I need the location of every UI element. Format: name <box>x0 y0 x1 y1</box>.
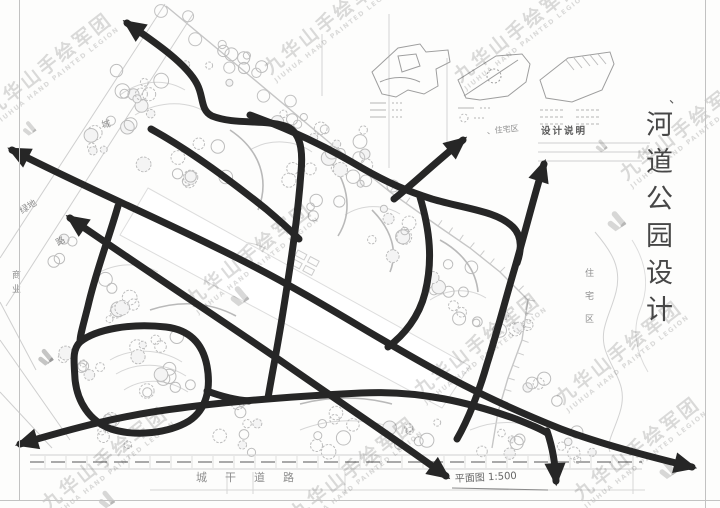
watermark: 九华山手绘军团JIUHUA HAND PAINTED LEGION <box>39 404 177 508</box>
label-city-main-road: 城干道路 <box>196 470 312 484</box>
path-left-descent <box>80 206 118 342</box>
watermark: 九华山手绘军团JIUHUA HAND PAINTED LEGION <box>617 74 720 190</box>
watermark: 九华山手绘军团JIUHUA HAND PAINTED LEGION <box>287 414 425 508</box>
path-right-connector <box>388 197 430 347</box>
watermark-en: JIUHUA HAND PAINTED LEGION <box>51 420 177 508</box>
sheet-title-vertical: 、 河道公园设计 <box>646 88 686 329</box>
watermark: 九华山手绘军团JIUHUA HAND PAINTED LEGION <box>0 10 121 126</box>
sketch-leader-lines <box>322 14 447 168</box>
flow-arrow-center <box>394 140 463 199</box>
watermark-en: JIUHUA HAND PAINTED LEGION <box>565 314 691 414</box>
label-residential-east: 住宅区 <box>585 267 594 325</box>
watermark-cn: 九华山手绘军团 <box>39 404 173 508</box>
design-note-heading: 设计说明 <box>541 125 587 137</box>
label-west-road: 路 <box>54 234 68 249</box>
watermark-cn: 九华山手绘军团 <box>553 298 687 409</box>
flow-arrow-northwest <box>127 23 302 398</box>
watermark-en: JIUHUA HAND PAINTED LEGION <box>629 90 720 190</box>
watermark-cn: 九华山手绘军团 <box>287 414 421 508</box>
sheet-frame <box>0 0 720 508</box>
path-loop-connector <box>207 391 249 401</box>
bold-arrow-network <box>12 23 692 481</box>
site-label-layer: 城 绿地 路 商业 、住宅区 住宅区 城干道路 <box>12 119 594 484</box>
watermark-cn: 九华山手绘军团 <box>571 394 705 505</box>
detail-sketch-1 <box>370 44 450 117</box>
minor-paths <box>150 130 478 404</box>
palm-watermark-icon <box>564 183 627 248</box>
watermark-en: JIUHUA HAND PAINTED LEGION <box>583 410 709 508</box>
detail-sketch-2 <box>458 54 530 122</box>
watermark: 九华山手绘军团JIUHUA HAND PAINTED LEGION <box>451 0 589 92</box>
flow-arrow-long-axis-1 <box>12 150 692 467</box>
tree-layer <box>48 5 596 464</box>
contour-lines <box>95 82 540 430</box>
watermark-en: JIUHUA HAND PAINTED LEGION <box>0 26 121 126</box>
watermark: 九华山手绘军团JIUHUA HAND PAINTED LEGION <box>571 394 709 508</box>
design-note-lines <box>538 143 650 161</box>
watermark-en: JIUHUA HAND PAINTED LEGION <box>423 306 549 406</box>
watermark: 九华山手绘军团JIUHUA HAND PAINTED LEGION <box>183 200 321 316</box>
palm-watermark-icon <box>61 466 115 508</box>
palm-watermark-icon <box>2 325 54 379</box>
scanned-plan-page: 九华山手绘军团JIUHUA HAND PAINTED LEGION 九华山手绘军… <box>0 0 720 508</box>
flow-arrow-southwest <box>20 393 547 444</box>
watermark-cn: 九华山手绘军团 <box>451 0 585 87</box>
title-orientation-mark: 、 <box>669 88 682 107</box>
detail-sketch-3 <box>540 52 614 124</box>
scale-note-group: 平面图 1:500 <box>452 470 548 490</box>
pencil-underlay <box>0 0 720 508</box>
palm-watermark-icon <box>0 101 37 148</box>
watermark-en: JIUHUA HAND PAINTED LEGION <box>273 0 399 84</box>
watermark-cn: 九华山手绘军团 <box>261 0 395 79</box>
west-road-lines <box>0 4 193 448</box>
watermark-cn: 九华山手绘军团 <box>0 10 117 121</box>
river-band <box>120 188 470 408</box>
stream-line <box>595 232 622 452</box>
path-mid-diagonal <box>151 129 299 239</box>
flow-arrow-northeast <box>457 164 544 439</box>
sheet-title: 河道公园设计 <box>646 107 686 329</box>
flow-arrow-long-axis-2 <box>70 218 446 476</box>
stream-line-2 <box>632 240 648 372</box>
watermark-en: JIUHUA HAND PAINTED LEGION <box>299 430 425 508</box>
watermark: 九华山手绘军团JIUHUA HAND PAINTED LEGION <box>411 290 549 406</box>
palm-watermark-icon <box>568 121 607 162</box>
palm-watermark-icon <box>187 258 250 323</box>
watermark: 九华山手绘军团JIUHUA HAND PAINTED LEGION <box>261 0 399 84</box>
dimension-line <box>150 452 645 494</box>
palm-watermark-icon <box>619 434 676 493</box>
boundary-hatch <box>390 186 535 402</box>
watermark: 九华山手绘军团JIUHUA HAND PAINTED LEGION <box>553 298 691 414</box>
scale-note: 平面图 1:500 <box>455 470 518 485</box>
path-pond-loop <box>74 326 208 433</box>
ink-layer: 城 绿地 路 商业 、住宅区 住宅区 城干道路 设计说明 平面图 1:500 <box>0 0 720 508</box>
plaza-detail <box>280 247 324 287</box>
label-west-road-top: 城 <box>101 119 112 131</box>
watermark-cn: 九华山手绘军团 <box>183 200 317 311</box>
label-commercial: 商业 <box>12 269 21 295</box>
flow-arrow-south <box>547 431 556 481</box>
path-upper-loop <box>250 115 520 263</box>
label-green-space: 绿地 <box>17 197 39 217</box>
watermark-en: JIUHUA HAND PAINTED LEGION <box>463 0 589 92</box>
watermark-en: JIUHUA HAND PAINTED LEGION <box>195 216 321 316</box>
city-road <box>30 455 642 469</box>
watermark-cn: 九华山手绘军团 <box>617 74 720 185</box>
label-residential-center: 、住宅区 <box>486 123 519 136</box>
site-boundary <box>166 6 528 448</box>
watermark-cn: 九华山手绘军团 <box>411 290 545 401</box>
